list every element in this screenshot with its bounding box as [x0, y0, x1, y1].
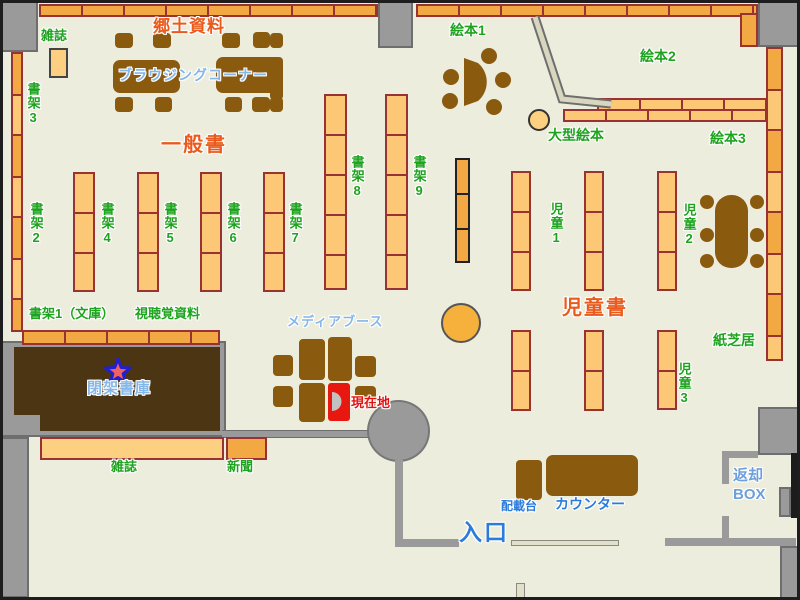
media-booth-seat — [355, 356, 376, 377]
diagonal-wall-inner — [535, 17, 611, 104]
shelf-top-row-left — [39, 4, 378, 17]
entrance-door-strip — [511, 540, 619, 546]
label-shoka6: 書架6 — [226, 202, 240, 246]
shelf-shoka9 — [385, 94, 408, 290]
shelf-jido-bottom-b — [584, 330, 604, 411]
kids-oval-table — [715, 195, 748, 268]
browsing-chair — [252, 97, 270, 112]
stool — [486, 99, 502, 115]
label-kyodo-shiryo: 郷土資料 — [153, 18, 225, 36]
entrance-wall-horizontal — [395, 539, 459, 547]
label-shinbun: 新聞 — [227, 460, 253, 474]
stool — [700, 195, 714, 209]
label-henkyaku-line2: BOX — [733, 485, 766, 504]
label-counter: カウンター — [555, 497, 625, 512]
browsing-chair — [115, 33, 133, 48]
shelf-top-row-right — [416, 4, 758, 17]
shelf-jido-bottom-a — [511, 330, 531, 411]
label-shoka3: 書架3 — [26, 82, 40, 126]
label-ehon2: 絵本2 — [640, 49, 676, 64]
label-shoka7: 書架7 — [288, 202, 302, 246]
label-browsing-corner: ブラウジングコーナー — [118, 68, 268, 83]
stool — [750, 228, 764, 242]
label-jido2: 児童2 — [682, 203, 696, 247]
returnbox-dark-strip — [791, 453, 800, 518]
shelf-shoka4 — [73, 172, 95, 292]
browsing-table-2-ext — [270, 57, 283, 100]
wall-bottom-left-column — [0, 437, 29, 598]
label-shoka4: 書架4 — [100, 202, 114, 246]
label-shoka5: 書架5 — [163, 202, 177, 246]
label-zasshi-top: 雑誌 — [41, 29, 67, 43]
closed-stacks-room-lower — [40, 415, 220, 431]
wall-top-right-block — [758, 0, 800, 47]
library-floor-map: 雑誌 郷土資料 ブラウジングコーナー 一般書 書架3 書架2 書架4 書架5 書… — [0, 0, 800, 600]
label-shoka9: 書架9 — [412, 155, 426, 199]
pillar-top-center — [378, 0, 413, 48]
shelf-shoka7 — [263, 172, 285, 292]
media-booth-seat — [273, 355, 293, 376]
media-booth-seat — [273, 386, 293, 407]
label-ippansho: 一般書 — [161, 135, 227, 156]
label-jido1: 児童1 — [549, 202, 563, 246]
round-table-jido — [441, 303, 481, 343]
label-ehon3: 絵本3 — [710, 131, 746, 146]
label-zasshi-bottom: 雑誌 — [111, 460, 137, 474]
stool — [481, 48, 497, 64]
shelf-top-right-corner-cell — [740, 13, 758, 47]
browsing-chair — [270, 33, 283, 48]
bottom-stub — [516, 583, 525, 600]
browsing-chair — [253, 32, 270, 48]
label-shoka8: 書架8 — [350, 155, 364, 199]
label-ogata-ehon: 大型絵本 — [548, 128, 604, 143]
label-genzaichi: 現在地 — [351, 396, 390, 410]
ehon1-fan-table — [464, 58, 487, 106]
label-shoka2: 書架2 — [29, 202, 43, 246]
haisaidai-desk — [516, 460, 542, 500]
shelf-shoka5 — [137, 172, 159, 292]
current-location-booth — [328, 383, 350, 421]
shelf-left-strip-shoka2-3 — [11, 52, 23, 332]
media-booth-unit — [299, 383, 325, 422]
browsing-chair — [155, 97, 172, 112]
counter-desk — [546, 455, 638, 496]
label-iriguchi: 入口 — [459, 520, 509, 544]
label-kamishibai: 紙芝居 — [713, 333, 755, 348]
label-jidosho: 児童書 — [562, 298, 628, 319]
diagonal-wall — [535, 17, 611, 104]
stool — [442, 93, 458, 109]
stool — [750, 195, 764, 209]
browsing-chair — [270, 97, 283, 112]
shelf-jido2 — [657, 171, 677, 291]
label-haisaidai: 配載台 — [501, 500, 537, 513]
shelf-zasshi-long — [40, 437, 224, 460]
browsing-chair — [115, 97, 133, 112]
stool — [750, 254, 764, 268]
label-heika-shoko: 閉架書庫 — [87, 381, 151, 397]
shelf-ehon-double-row-2 — [563, 109, 767, 122]
shelf-shoka6 — [200, 172, 222, 292]
label-henkyaku-line1: 返却 — [733, 466, 766, 485]
stool — [700, 228, 714, 242]
label-shichokaku: 視聴覚資料 — [135, 307, 200, 321]
shelf-jido1-a — [511, 171, 531, 291]
shelf-middle-thin — [455, 158, 470, 263]
media-booth-unit — [299, 339, 325, 380]
returnbox-gray-block — [758, 407, 800, 455]
shelf-shoka8 — [324, 94, 347, 290]
shelf-zasshi-top — [49, 48, 68, 78]
label-media-booth: メディアブース — [287, 315, 383, 329]
wall-bottom-right-corner — [780, 546, 800, 600]
wall-top-left-block — [0, 0, 38, 52]
label-jido3: 児童3 — [677, 362, 691, 406]
stool — [495, 72, 511, 88]
stool — [700, 254, 714, 268]
entrance-wall-vertical — [395, 460, 403, 541]
media-booth-unit — [328, 337, 352, 381]
shelf-jido3 — [657, 330, 677, 410]
browsing-chair — [225, 97, 242, 112]
returnbox-wall-top — [722, 451, 758, 458]
returnbox-wall-stub-lower — [722, 516, 729, 541]
label-henkyaku-box: 返却 BOX — [733, 466, 766, 504]
label-ehon1: 絵本1 — [450, 23, 486, 38]
shelf-shichokaku-row — [22, 330, 220, 345]
shelf-shinbun — [226, 437, 267, 460]
shelf-right-edge-strip — [766, 47, 783, 361]
returnbox-wall-bottom — [665, 538, 796, 546]
shelf-jido1-b — [584, 171, 604, 291]
returnbox-slot — [779, 487, 791, 517]
label-shoka1-bunko: 書架1（文庫） — [29, 307, 114, 321]
ogata-ehon-round-stand — [528, 109, 550, 131]
stool — [443, 69, 459, 85]
